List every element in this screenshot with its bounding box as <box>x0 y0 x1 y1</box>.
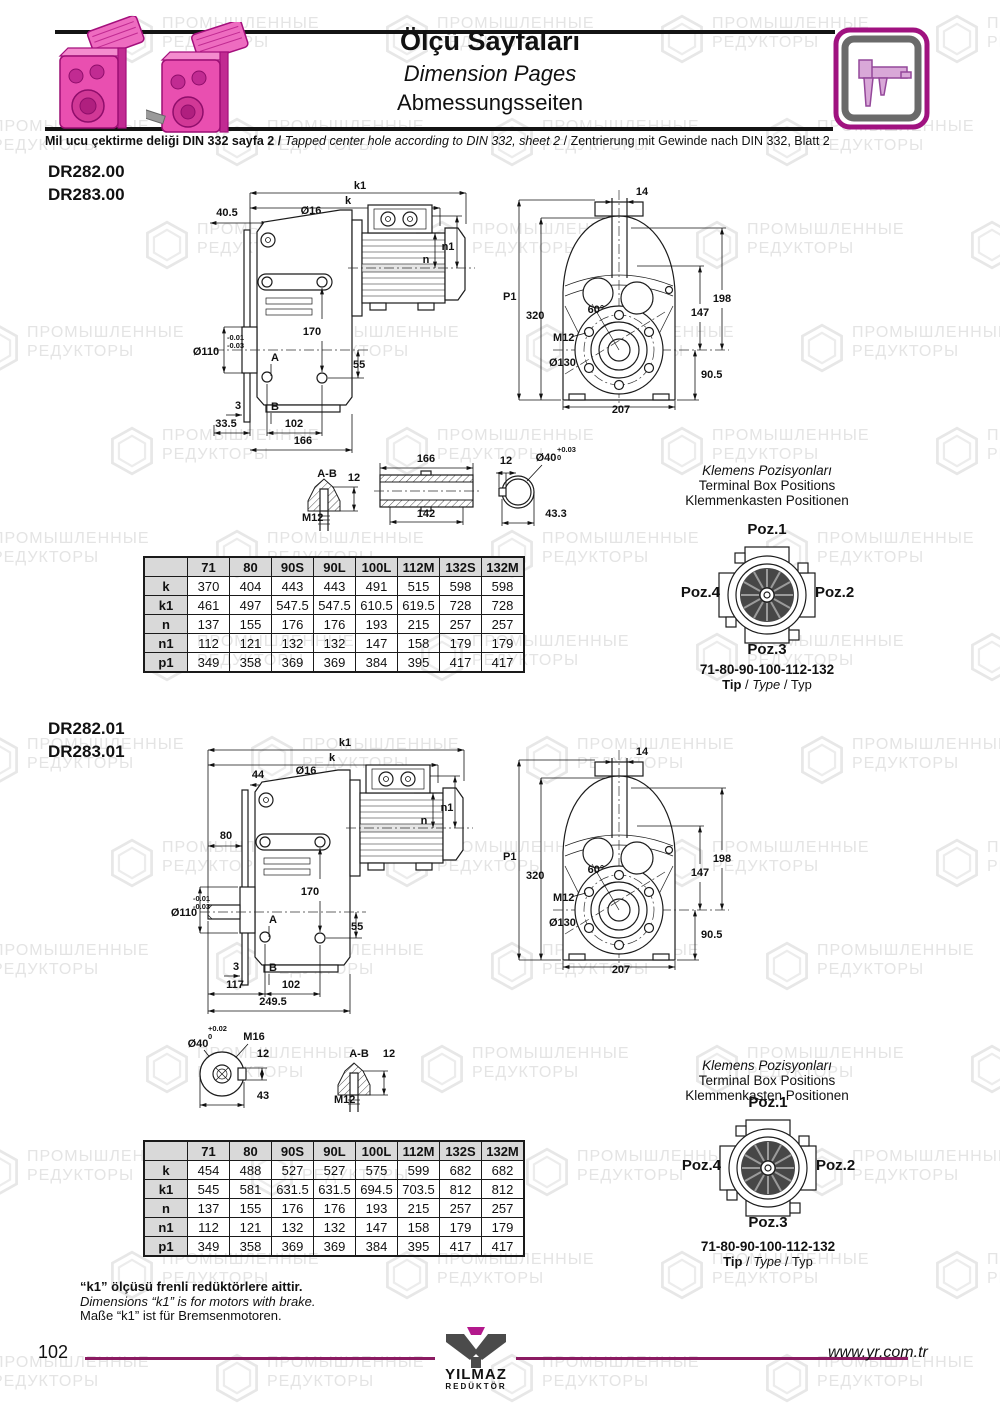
table-cell: 349 <box>188 653 230 673</box>
table-cell: 598 <box>440 577 482 596</box>
column-header: 100L <box>356 1141 398 1161</box>
dim-label: 55 <box>351 921 363 933</box>
table-row: n1112121132132147158179179 <box>144 634 524 653</box>
watermark-hexagon-icon <box>970 220 1000 270</box>
column-header: 132S <box>440 557 482 577</box>
page-title-german: Abmessungsseiten <box>280 90 700 116</box>
table-cell: 369 <box>272 1237 314 1257</box>
dim-label: Ø40 <box>536 452 557 464</box>
dim-label: A-B <box>349 1048 369 1060</box>
table-cell: 545 <box>188 1180 230 1199</box>
column-header: 80 <box>230 557 272 577</box>
tip-german: Typ <box>792 1254 813 1269</box>
table-row: n137155176176193215257257 <box>144 615 524 634</box>
model-number: DR283.01 <box>48 742 125 762</box>
terminal-title-english: Terminal Box Positions <box>637 1073 897 1088</box>
side-view-drawing-2: k1 k 44 Ø16 Ø110 -0.01 -0.03 80 170 55 <box>160 735 515 1020</box>
dim-label: 14 <box>636 186 649 198</box>
dimension-table-1: 718090S90L100L112M132S132Mk3704044434434… <box>143 556 525 673</box>
dim-label: k <box>329 752 336 764</box>
dim-label: 320 <box>526 310 544 322</box>
table-cell: 176 <box>272 1199 314 1218</box>
watermark-hexagon-icon <box>110 426 154 476</box>
dim-label: 117 <box>226 979 244 991</box>
dim-label: P1 <box>503 851 516 863</box>
watermark-hexagon-icon <box>935 1250 979 1300</box>
table-cell: 384 <box>356 653 398 673</box>
table-cell: 728 <box>482 596 525 615</box>
page-title-english: Dimension Pages <box>280 61 700 87</box>
table-cell: 454 <box>188 1161 230 1180</box>
terminal-title-german: Klemmenkasten Positionen <box>637 493 897 508</box>
table-cell: 598 <box>482 577 525 596</box>
watermark-hexagon-icon <box>970 632 1000 682</box>
dim-label: M12 <box>553 892 574 904</box>
watermark: ПРОМЫШЛЕННЫЕРЕДУКТОРЫ <box>420 1044 630 1094</box>
table-cell: 257 <box>440 1199 482 1218</box>
column-header: 132M <box>482 1141 525 1161</box>
k1-footnote: “k1” ölçüsü frenli redüktörlere aittir. … <box>80 1280 316 1324</box>
table-cell: 112 <box>188 634 230 653</box>
dim-label: 55 <box>353 359 365 371</box>
footnote-german: Maße “k1” ist für Bremsenmotoren. <box>80 1309 316 1324</box>
watermark-hexagon-icon <box>970 1044 1000 1094</box>
poz4-label: Poz.4 <box>648 584 720 601</box>
watermark-hexagon-icon <box>800 735 844 785</box>
table-cell: 491 <box>356 577 398 596</box>
column-header: 112M <box>398 1141 440 1161</box>
table-cell: 112 <box>188 1218 230 1237</box>
dim-label: n <box>421 815 428 827</box>
column-header: 90L <box>314 557 356 577</box>
tip-german: Typ <box>791 677 812 692</box>
watermark: ПРОМЫШЛЕННЫЕРЕДУКТОРЫ <box>970 1044 1000 1094</box>
dim-label: 60° <box>588 864 605 876</box>
dim-label: Ø130 <box>549 917 576 929</box>
shaft-detail-drawing-2: +0.02 0 Ø40 M16 12 43 A-B M12 12 <box>150 1020 420 1115</box>
table-row: k1545581631.5631.5694.5703.5812812 <box>144 1180 524 1199</box>
watermark: ПРОМЫШЛЕННЫЕРЕДУКТОРЫ <box>800 735 1000 785</box>
model-number: DR283.00 <box>48 185 125 205</box>
table-cell: 515 <box>398 577 440 596</box>
tip-turkish: Tip <box>723 1254 742 1269</box>
column-header: 80 <box>230 1141 272 1161</box>
dim-label: 147 <box>691 307 709 319</box>
side-view-drawing-1: k1 k 40.5 Ø16 Ø110 -0.01 -0.03 170 55 A … <box>170 178 515 458</box>
table-cell: 193 <box>356 1199 398 1218</box>
table-cell: 121 <box>230 1218 272 1237</box>
product-photo-2 <box>146 22 256 140</box>
terminal-title-turkish: Klemens Pozisyonları <box>637 1058 897 1073</box>
dim-label: 14 <box>636 746 649 758</box>
dim-label: k1 <box>354 180 366 192</box>
table-cell: 147 <box>356 1218 398 1237</box>
dim-label: 43 <box>257 1090 269 1102</box>
table-cell: 132 <box>314 1218 356 1237</box>
table-row: n137155176176193215257257 <box>144 1199 524 1218</box>
size-range-label-1: 71-80-90-100-112-132 <box>637 662 897 677</box>
table-cell: 257 <box>440 615 482 634</box>
row-label: n1 <box>144 634 188 653</box>
dim-label: 207 <box>612 964 630 976</box>
table-cell: 158 <box>398 634 440 653</box>
table-cell: 179 <box>440 1218 482 1237</box>
table-cell: 369 <box>272 653 314 673</box>
table-cell: 158 <box>398 1218 440 1237</box>
table-cell: 132 <box>272 634 314 653</box>
watermark-hexagon-icon <box>765 941 809 991</box>
watermark: ПРОМЫШЛЕННЫЕРЕДУКТОРЫ <box>765 941 975 991</box>
dim-label: 3 <box>235 400 241 412</box>
table-cell: 369 <box>314 1237 356 1257</box>
table-cell: 179 <box>482 634 525 653</box>
table-cell: 497 <box>230 596 272 615</box>
watermark-hexagon-icon <box>935 838 979 888</box>
table-cell: 176 <box>314 1199 356 1218</box>
watermark-hexagon-icon <box>0 323 19 373</box>
column-header: 132M <box>482 557 525 577</box>
table-row: n1112121132132147158179179 <box>144 1218 524 1237</box>
dim-label: 102 <box>282 979 300 991</box>
row-label: k <box>144 577 188 596</box>
dim-label: 44 <box>252 769 265 781</box>
poz2-label: Poz.2 <box>816 1157 855 1174</box>
tip-english: Type <box>752 677 780 692</box>
table-cell: 631.5 <box>272 1180 314 1199</box>
table-cell: 176 <box>314 615 356 634</box>
footnote-english: Dimensions “k1” is for motors with brake… <box>80 1295 316 1310</box>
table-cell: 404 <box>230 577 272 596</box>
table-cell: 215 <box>398 1199 440 1218</box>
model-number: DR282.01 <box>48 719 125 739</box>
column-header: 71 <box>188 1141 230 1161</box>
column-header: 100L <box>356 557 398 577</box>
logo-text-reduktor: REDÜKTÖR <box>430 1382 522 1391</box>
dim-label: M12 <box>334 1094 355 1106</box>
dim-label: 249.5 <box>259 996 287 1008</box>
table-cell: 599 <box>398 1161 440 1180</box>
table-row: k370404443443491515598598 <box>144 577 524 596</box>
table-cell: 132 <box>314 634 356 653</box>
shaft-detail-drawing-1: A-B M12 12 166 142 12 Ø40 +0.03 0 43.3 <box>280 445 580 533</box>
column-header: 90L <box>314 1141 356 1161</box>
dim-label: A <box>269 914 277 926</box>
watermark: ПРОМЫШЛЕННЫЕРЕДУКТОРЫ <box>385 1250 595 1300</box>
yilmaz-logo <box>436 1326 516 1368</box>
watermark-hexagon-icon <box>935 14 979 64</box>
table-cell: 147 <box>356 634 398 653</box>
dim-label: 90.5 <box>701 929 722 941</box>
tolerance-label: 0 <box>208 1032 212 1041</box>
model-number: DR282.00 <box>48 162 125 182</box>
table-cell: 179 <box>440 634 482 653</box>
poz3-label: Poz.3 <box>727 641 807 658</box>
row-label: k <box>144 1161 188 1180</box>
table-row: k1461497547.5547.5610.5619.5728728 <box>144 596 524 615</box>
dim-label: 207 <box>612 404 630 416</box>
note-german: Zentrierung mit Gewinde nach DIN 332, Bl… <box>571 134 830 148</box>
dim-label: 198 <box>713 853 731 865</box>
dimension-table-2: 718090S90L100L112M132S132Mk4544885275275… <box>143 1140 525 1257</box>
footer-rule-left <box>85 1357 435 1360</box>
watermark: ПРОМЫШЛЕННЫЕРЕДУКТОРЫ <box>0 941 150 991</box>
table-cell: 631.5 <box>314 1180 356 1199</box>
dim-label: k <box>345 195 352 207</box>
table-cell: 257 <box>482 1199 525 1218</box>
table-cell: 443 <box>314 577 356 596</box>
poz4-label: Poz.4 <box>649 1157 721 1174</box>
dim-label: Ø110 <box>193 346 219 358</box>
dim-label: 90.5 <box>701 369 722 381</box>
tolerance-label: -0.03 <box>193 902 210 911</box>
table-cell: 417 <box>482 653 525 673</box>
table-cell: 179 <box>482 1218 525 1237</box>
dim-label: B <box>269 962 277 974</box>
table-cell: 132 <box>272 1218 314 1237</box>
row-label: p1 <box>144 1237 188 1257</box>
dim-label: 3 <box>233 961 239 973</box>
table-cell: 547.5 <box>314 596 356 615</box>
watermark: ПРОМЫШЛЕННЫЕРЕДУКТОРЫ <box>970 220 1000 270</box>
table-cell: 461 <box>188 596 230 615</box>
poz2-label: Poz.2 <box>815 584 854 601</box>
table-row: k454488527527575599682682 <box>144 1161 524 1180</box>
row-label: k1 <box>144 1180 188 1199</box>
watermark-hexagon-icon <box>525 1147 569 1197</box>
table-cell: 443 <box>272 577 314 596</box>
column-header: 132S <box>440 1141 482 1161</box>
tolerance-label: -0.03 <box>227 341 244 350</box>
caliper-icon <box>833 27 930 130</box>
dim-label: 12 <box>500 455 512 467</box>
table-cell: 417 <box>440 1237 482 1257</box>
dim-label: M12 <box>302 512 323 524</box>
table-cell: 581 <box>230 1180 272 1199</box>
table-cell: 575 <box>356 1161 398 1180</box>
terminal-title-english: Terminal Box Positions <box>637 478 897 493</box>
table-cell: 703.5 <box>398 1180 440 1199</box>
watermark: ПРОМЫШЛЕННЫЕРЕДУКТОРЫ <box>935 14 1000 64</box>
watermark: ПРОМЫШЛЕННЫЕРЕДУКТОРЫ <box>935 1250 1000 1300</box>
dim-label: n1 <box>442 241 455 253</box>
tip-turkish: Tip <box>722 677 741 692</box>
row-label: p1 <box>144 653 188 673</box>
column-header: 71 <box>188 557 230 577</box>
table-cell: 395 <box>398 1237 440 1257</box>
watermark-hexagon-icon <box>110 838 154 888</box>
watermark: ПРОМЫШЛЕННЫЕРЕДУКТОРЫ <box>935 426 1000 476</box>
size-range-label-2: 71-80-90-100-112-132 <box>638 1239 898 1254</box>
dim-label: 80 <box>220 830 232 842</box>
poz1-label: Poz.1 <box>728 1094 808 1111</box>
type-label-2: Tip / Type / Typ <box>638 1254 898 1269</box>
type-label-1: Tip / Type / Typ <box>637 677 897 692</box>
watermark-hexagon-icon <box>765 1353 809 1403</box>
product-photo-1 <box>50 16 152 136</box>
dim-label: 12 <box>383 1048 395 1060</box>
table-cell: 395 <box>398 653 440 673</box>
dim-label: Ø40 <box>188 1038 209 1050</box>
dim-label: 33.5 <box>215 418 236 430</box>
table-cell: 488 <box>230 1161 272 1180</box>
poz3-label: Poz.3 <box>728 1214 808 1231</box>
dim-label: A-B <box>317 468 337 480</box>
table-cell: 176 <box>272 615 314 634</box>
table-cell: 369 <box>314 653 356 673</box>
watermark-hexagon-icon <box>420 1044 464 1094</box>
table-cell: 155 <box>230 615 272 634</box>
column-header <box>144 1141 188 1161</box>
dim-label: 170 <box>301 886 319 898</box>
row-label: n <box>144 1199 188 1218</box>
table-cell: 155 <box>230 1199 272 1218</box>
table-cell: 728 <box>440 596 482 615</box>
front-view-drawing-2: 14 P1 320 198 147 60° M12 Ø130 90.5 <box>495 742 740 977</box>
dim-label: 12 <box>348 472 360 484</box>
dim-label: 12 <box>257 1048 269 1060</box>
dim-label: M12 <box>553 332 574 344</box>
page-number: 102 <box>38 1342 68 1363</box>
dim-label: A <box>271 352 279 364</box>
table-cell: 812 <box>482 1180 525 1199</box>
row-label: n <box>144 615 188 634</box>
dim-label: n <box>423 254 430 266</box>
watermark: ПРОМЫШЛЕННЫЕРЕДУКТОРЫ <box>935 838 1000 888</box>
table-cell: 417 <box>482 1237 525 1257</box>
dim-label: 198 <box>713 293 731 305</box>
column-header <box>144 557 188 577</box>
dim-label: 102 <box>285 418 303 430</box>
front-view-drawing-1: 14 P1 320 198 147 60° M12 Ø130 90.5 <box>495 182 740 417</box>
dim-label: 142 <box>417 508 435 520</box>
dim-label: 60° <box>588 304 605 316</box>
watermark: ПРОМЫШЛЕННЫЕРЕДУКТОРЫ <box>215 1353 425 1403</box>
table-cell: 417 <box>440 653 482 673</box>
table-cell: 121 <box>230 634 272 653</box>
dim-label: M16 <box>243 1031 264 1043</box>
note-english: Tapped center hole according to DIN 332,… <box>285 134 560 148</box>
table-cell: 137 <box>188 615 230 634</box>
table-cell: 349 <box>188 1237 230 1257</box>
dim-label: 43.3 <box>545 508 566 520</box>
table-cell: 610.5 <box>356 596 398 615</box>
table-cell: 137 <box>188 1199 230 1218</box>
watermark-hexagon-icon <box>800 323 844 373</box>
dim-label: k1 <box>339 737 351 749</box>
watermark-hexagon-icon <box>0 1147 19 1197</box>
watermark: ПРОМЫШЛЕННЫЕРЕДУКТОРЫ <box>0 1353 150 1403</box>
row-label: n1 <box>144 1218 188 1237</box>
dim-label: 170 <box>303 326 321 338</box>
table-cell: 257 <box>482 615 525 634</box>
dim-label: n1 <box>441 802 454 814</box>
watermark-hexagon-icon <box>215 1353 259 1403</box>
table-cell: 370 <box>188 577 230 596</box>
dim-label: Ø130 <box>549 357 576 369</box>
dim-label: 320 <box>526 870 544 882</box>
column-header: 112M <box>398 557 440 577</box>
watermark-hexagon-icon <box>935 426 979 476</box>
terminal-box-title-1: Klemens Pozisyonları Terminal Box Positi… <box>637 463 897 508</box>
watermark: ПРОМЫШЛЕННЫЕРЕДУКТОРЫ <box>0 529 150 579</box>
dim-label: 166 <box>417 453 435 465</box>
table-row: p1349358369369384395417417 <box>144 1237 524 1257</box>
catalog-page: ПРОМЫШЛЕННЫЕРЕДУКТОРЫПРОМЫШЛЕННЫЕРЕДУКТО… <box>0 0 1000 1414</box>
dim-label: P1 <box>503 291 516 303</box>
table-cell: 619.5 <box>398 596 440 615</box>
table-cell: 358 <box>230 1237 272 1257</box>
watermark: ПРОМЫШЛЕННЫЕРЕДУКТОРЫ <box>970 632 1000 682</box>
poz1-label: Poz.1 <box>727 521 807 538</box>
watermark-hexagon-icon <box>0 735 19 785</box>
watermark-hexagon-icon <box>385 1250 429 1300</box>
dim-label: 40.5 <box>216 207 237 219</box>
table-row: p1349358369369384395417417 <box>144 653 524 673</box>
table-cell: 358 <box>230 653 272 673</box>
table-cell: 527 <box>314 1161 356 1180</box>
table-cell: 215 <box>398 615 440 634</box>
website-url: www.yr.com.tr <box>828 1344 928 1362</box>
table-cell: 682 <box>482 1161 525 1180</box>
column-header: 90S <box>272 557 314 577</box>
table-cell: 812 <box>440 1180 482 1199</box>
row-label: k1 <box>144 596 188 615</box>
logo-text-yilmaz: YILMAZ <box>430 1366 522 1383</box>
table-cell: 527 <box>272 1161 314 1180</box>
footnote-turkish: “k1” ölçüsü frenli redüktörlere aittir. <box>80 1280 316 1295</box>
page-title-turkish: Ölçü Sayfaları <box>280 26 700 57</box>
dim-label: B <box>271 401 279 413</box>
watermark: ПРОМЫШЛЕННЫЕРЕДУКТОРЫ <box>0 323 185 373</box>
column-header: 90S <box>272 1141 314 1161</box>
dim-label: 147 <box>691 867 709 879</box>
table-cell: 694.5 <box>356 1180 398 1199</box>
table-cell: 682 <box>440 1161 482 1180</box>
terminal-title-turkish: Klemens Pozisyonları <box>637 463 897 478</box>
watermark: ПРОМЫШЛЕННЫЕРЕДУКТОРЫ <box>800 323 1000 373</box>
table-cell: 547.5 <box>272 596 314 615</box>
page-title-block: Ölçü Sayfaları Dimension Pages Abmessung… <box>280 26 700 116</box>
tip-english: Type <box>753 1254 781 1269</box>
table-cell: 384 <box>356 1237 398 1257</box>
table-cell: 193 <box>356 615 398 634</box>
tolerance-label: 0 <box>557 453 561 462</box>
